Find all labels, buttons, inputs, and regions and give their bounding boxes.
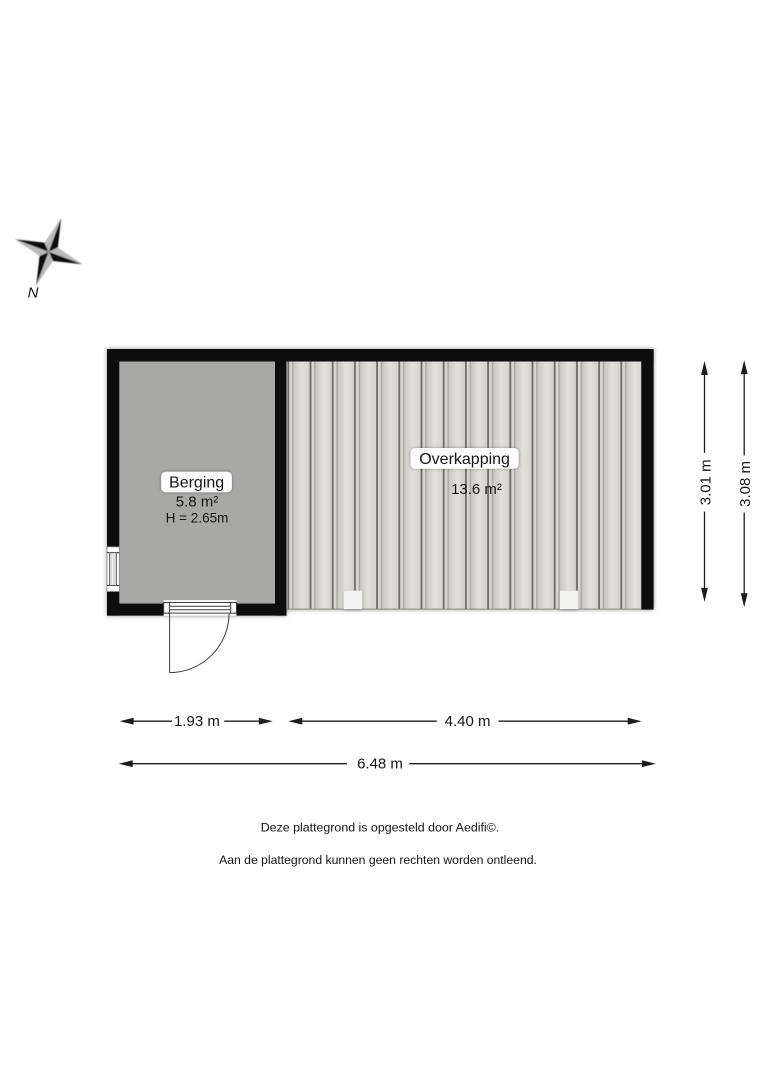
svg-text:5.8 m²: 5.8 m² <box>176 494 219 511</box>
svg-text:3.01 m: 3.01 m <box>697 459 714 505</box>
svg-text:3.08 m: 3.08 m <box>737 461 754 507</box>
svg-text:1.93 m: 1.93 m <box>174 713 220 730</box>
svg-text:Berging: Berging <box>169 475 224 492</box>
svg-text:N: N <box>28 285 39 302</box>
svg-text:Overkapping: Overkapping <box>419 451 510 468</box>
svg-text:6.48 m: 6.48 m <box>357 756 403 773</box>
svg-text:H = 2.65m: H = 2.65m <box>166 510 229 525</box>
svg-text:Aan de plattegrond kunnen geen: Aan de plattegrond kunnen geen rechten w… <box>219 853 537 867</box>
svg-text:4.40 m: 4.40 m <box>445 713 491 730</box>
svg-text:13.6 m²: 13.6 m² <box>451 481 502 498</box>
svg-text:Deze plattegrond is opgesteld: Deze plattegrond is opgesteld door Aedif… <box>261 821 500 835</box>
